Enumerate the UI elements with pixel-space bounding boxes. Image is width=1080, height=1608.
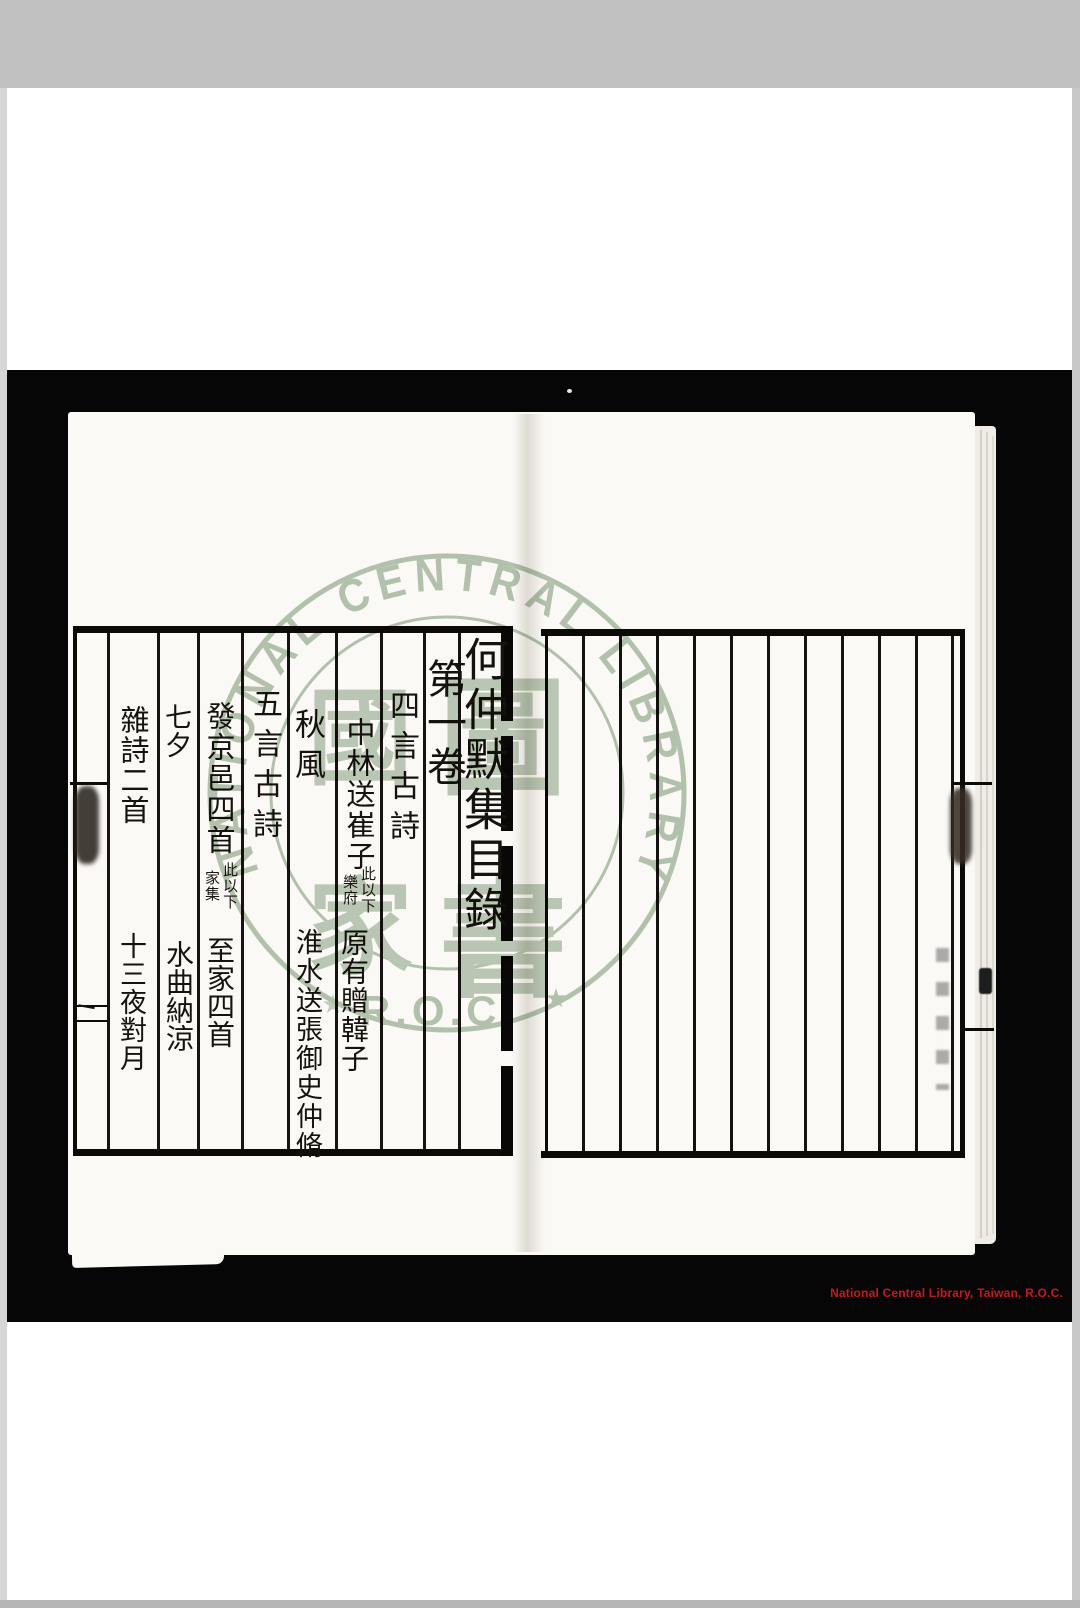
matte-right-strip (1072, 88, 1080, 1600)
scanned-book-viewer: 一 何仲默集目錄 第一卷 四言古詩 中林送崔子 此以下 樂府 原有贈韓子 秋風 … (0, 0, 1080, 1608)
column-rule (767, 636, 770, 1151)
toc-entry: 十三夜對月 (117, 932, 144, 1072)
column-rule (841, 636, 844, 1151)
seal-char: 圖 (439, 668, 567, 811)
library-credit-text: National Central Library, Taiwan, R.O.C. (830, 1286, 1063, 1300)
star-icon: ★ (544, 983, 567, 1013)
seal-char: 國 (307, 681, 412, 798)
page-edge-line (992, 436, 994, 1234)
column-rule (951, 636, 954, 1151)
star-icon: ★ (321, 989, 344, 1019)
page-edge-line (986, 432, 988, 1236)
margin-divider (952, 782, 992, 785)
column-rule (878, 636, 881, 1151)
page-edge-line (980, 430, 982, 1238)
column-rule (730, 636, 733, 1151)
margin-divider (70, 782, 107, 785)
blank-frame-bottom (541, 1151, 965, 1158)
blank-frame-right (960, 633, 965, 1158)
matte-top (0, 0, 1080, 88)
fold-title-smudge (950, 788, 972, 864)
matte-left-strip (0, 88, 7, 1600)
folio-number: 一 (75, 997, 95, 1017)
seal-char: 家 (307, 871, 412, 988)
seal-roc-text: R.O.C. (360, 987, 518, 1034)
column-rule (915, 636, 918, 1151)
library-seal-watermark: NATIONAL CENTRAL LIBRARY 國 家 圖 書 R.O.C. … (187, 533, 707, 1053)
bleedthrough-marks (936, 948, 949, 1090)
column-rule (107, 633, 110, 1149)
margin-divider (962, 1028, 994, 1031)
toc-entry: 雜詩二首 (117, 705, 146, 825)
column-rule (804, 636, 807, 1151)
margin-divider (73, 1020, 107, 1022)
ink-mark (979, 968, 992, 994)
fold-title-smudge (75, 786, 99, 864)
column-rule (157, 633, 160, 1149)
toc-entry: 七夕 (162, 703, 189, 759)
matte-bottom (0, 1600, 1080, 1608)
toc-frame-left (73, 626, 77, 1156)
dust-speck (567, 389, 572, 393)
